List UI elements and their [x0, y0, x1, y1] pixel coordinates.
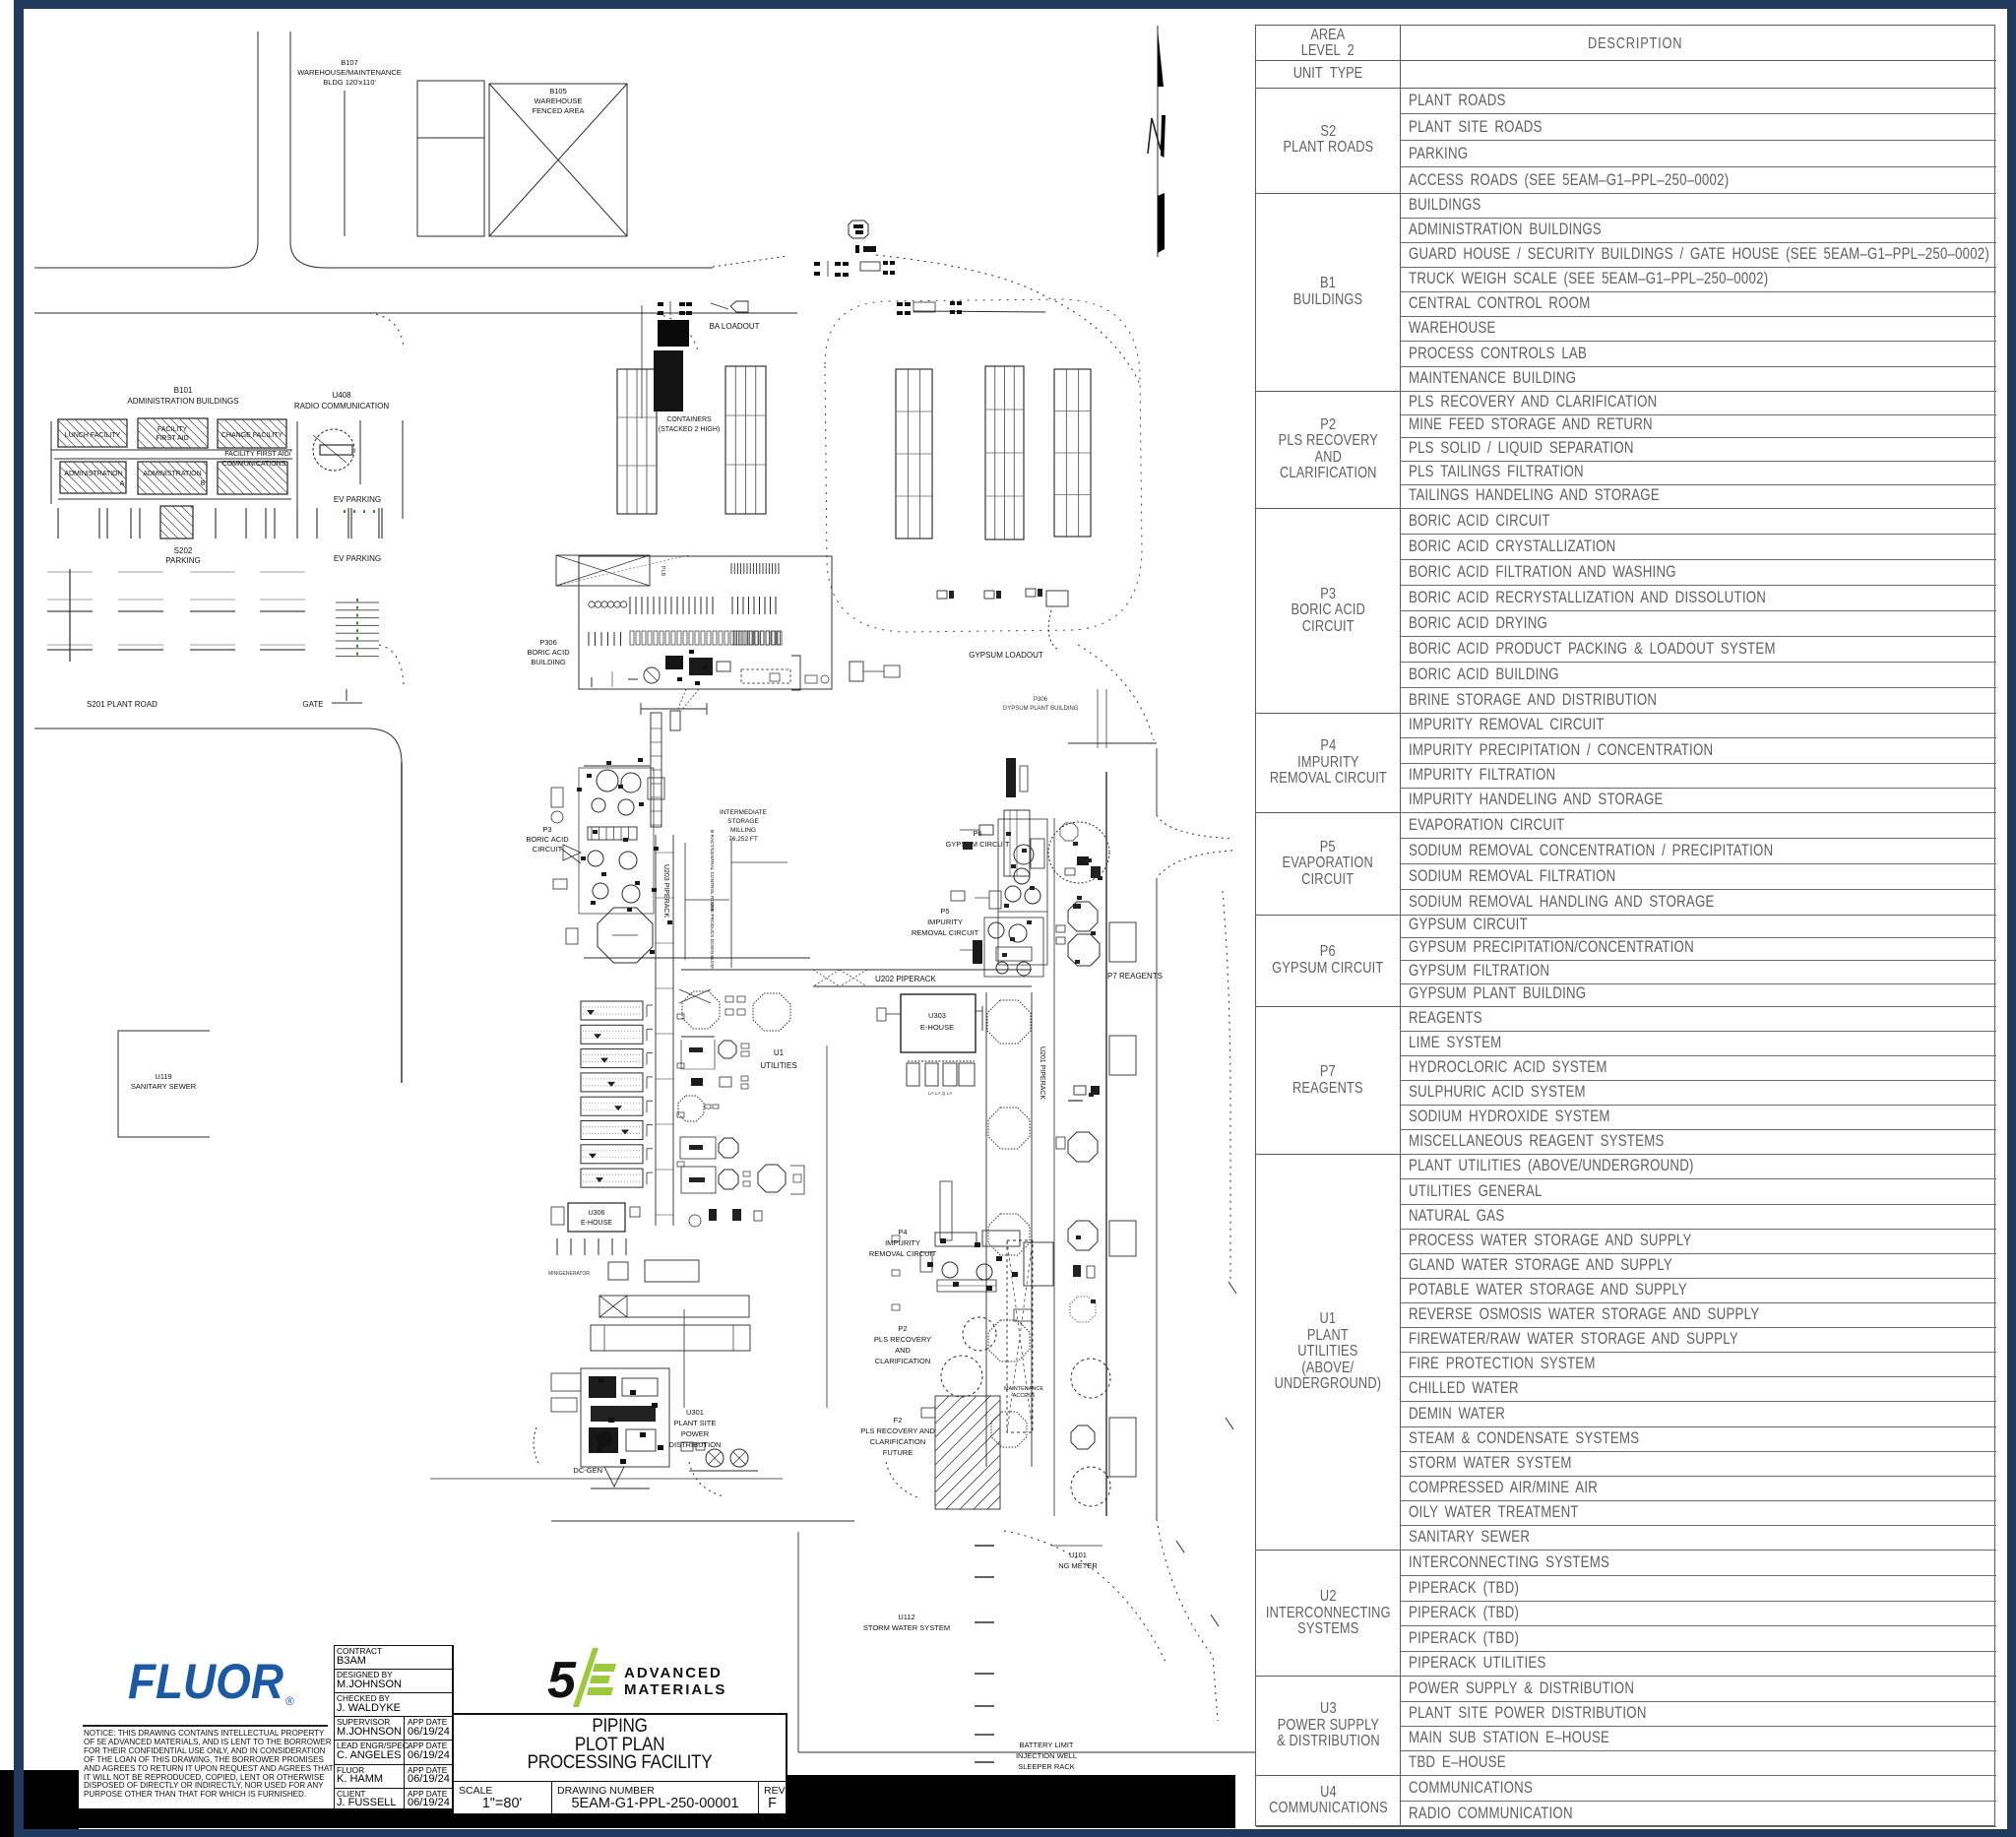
svg-text:U112: U112 — [898, 1613, 914, 1621]
svg-text:U408: U408 — [332, 391, 351, 400]
svg-text:CONTAINERS: CONTAINERS — [666, 416, 712, 423]
svg-text:WAREHOUSE/MAINTENANCE: WAREHOUSE/MAINTENANCE — [297, 68, 402, 77]
svg-text:DISTRIBUTION: DISTRIBUTION — [669, 1440, 722, 1449]
svg-text:E-HOUSE: E-HOUSE — [581, 1220, 612, 1227]
svg-text:U201 PIPERACK: U201 PIPERACK — [1039, 1046, 1045, 1100]
svg-text:A: A — [120, 480, 125, 487]
svg-text:P5: P5 — [940, 907, 949, 916]
svg-text:S202: S202 — [174, 546, 193, 555]
svg-text:MNE PRODUCS DOWN BLDM: MNE PRODUCS DOWN BLDM — [709, 902, 715, 968]
svg-text:76,252 FT: 76,252 FT — [728, 836, 758, 843]
svg-text:GYPSUM LOADOUT: GYPSUM LOADOUT — [969, 651, 1043, 660]
svg-text:U301: U301 — [686, 1408, 704, 1417]
svg-text:POWER: POWER — [681, 1429, 710, 1438]
svg-text:BATTERY LIMIT: BATTERY LIMIT — [1019, 1741, 1073, 1749]
svg-text:P7 REAGENTS: P7 REAGENTS — [1107, 972, 1163, 981]
svg-text:RADIO COMMUNICATION: RADIO COMMUNICATION — [294, 402, 390, 411]
svg-text:EV PARKING: EV PARKING — [334, 495, 381, 504]
svg-text:PLS RECOVERY AND: PLS RECOVERY AND — [860, 1426, 935, 1435]
svg-text:STORM WATER SYSTEM: STORM WATER SYSTEM — [863, 1623, 950, 1632]
svg-text:B101: B101 — [174, 386, 193, 395]
svg-text:U303: U303 — [928, 1011, 946, 1020]
svg-text:FACILITY: FACILITY — [157, 426, 188, 433]
svg-text:5: 5 — [547, 1652, 577, 1709]
svg-text:INJECTION WELL: INJECTION WELL — [1016, 1751, 1077, 1760]
svg-text:SLEEPER RACK: SLEEPER RACK — [1018, 1762, 1075, 1771]
svg-text:ADMINISTRATION: ADMINISTRATION — [64, 471, 122, 477]
svg-text:BORIC ACID: BORIC ACID — [527, 648, 570, 657]
svg-text:GYPSUM PLANT BUILDING: GYPSUM PLANT BUILDING — [1003, 706, 1079, 712]
svg-text:EV PARKING: EV PARKING — [334, 554, 381, 563]
svg-text:U119: U119 — [155, 1072, 171, 1081]
svg-text:U101: U101 — [1069, 1551, 1087, 1559]
svg-text:STORAGE: STORAGE — [727, 818, 759, 825]
svg-text:DC-GEN: DC-GEN — [573, 1466, 602, 1475]
svg-text:CLARIFICATION: CLARIFICATION — [875, 1357, 931, 1365]
svg-text:ADVANCED: ADVANCED — [624, 1665, 723, 1681]
svg-text:SANITARY SEWER: SANITARY SEWER — [131, 1082, 197, 1091]
svg-text:(STACKED 2 HIGH): (STACKED 2 HIGH) — [659, 426, 721, 433]
svg-text:IMPURITY: IMPURITY — [927, 918, 963, 926]
svg-text:F2: F2 — [894, 1416, 903, 1425]
svg-text:BA LOADOUT: BA LOADOUT — [709, 322, 759, 331]
svg-text:REMOVAL CIRCUIT: REMOVAL CIRCUIT — [912, 928, 979, 937]
svg-text:B RACT/CENTRAL CONTROL ROOM: B RACT/CENTRAL CONTROL ROOM — [709, 830, 715, 911]
svg-text:REMOVAL CIRCUIT: REMOVAL CIRCUIT — [869, 1249, 937, 1258]
svg-text:LA LA Q LA: LA LA Q LA — [928, 1091, 954, 1097]
svg-text:PLS RECOVERY: PLS RECOVERY — [874, 1335, 931, 1344]
svg-text:U203 PIPERACK: U203 PIPERACK — [662, 864, 669, 918]
svg-text:LUNCH FACILITY: LUNCH FACILITY — [65, 432, 121, 439]
svg-text:BORIC ACID: BORIC ACID — [526, 835, 569, 844]
svg-text:B: B — [201, 480, 206, 487]
svg-text:S201 PLANT ROAD: S201 PLANT ROAD — [87, 700, 157, 709]
svg-text:U1: U1 — [774, 1048, 785, 1057]
svg-text:B105: B105 — [549, 87, 567, 95]
svg-text:CIRCUIT: CIRCUIT — [533, 845, 563, 854]
svg-text:B107: B107 — [341, 58, 358, 67]
svg-text:GATE: GATE — [302, 700, 323, 709]
svg-text:MINIGENERATOR: MINIGENERATOR — [548, 1271, 590, 1277]
svg-text:U306: U306 — [589, 1210, 605, 1217]
svg-text:FUTURE: FUTURE — [883, 1448, 913, 1457]
svg-text:CLARIFICATION: CLARIFICATION — [870, 1437, 926, 1446]
svg-text:MAINTENANCE: MAINTENANCE — [1004, 1386, 1043, 1392]
svg-text:P306: P306 — [1034, 697, 1048, 703]
svg-text:GYPSUM CIRCUIT: GYPSUM CIRCUIT — [945, 840, 1009, 849]
svg-text:UTILITIES: UTILITIES — [760, 1061, 796, 1070]
svg-text:AND: AND — [895, 1346, 911, 1355]
svg-text:WAREHOUSE: WAREHOUSE — [535, 96, 583, 105]
svg-text:CHANGE FACILITY: CHANGE FACILITY — [221, 432, 283, 439]
svg-text:FENCED AREA: FENCED AREA — [533, 106, 585, 115]
svg-text:U202 PIPERACK: U202 PIPERACK — [875, 975, 936, 983]
svg-text:PARKING: PARKING — [165, 556, 200, 565]
svg-text:®: ® — [285, 1694, 294, 1708]
svg-text:P3: P3 — [542, 825, 551, 834]
svg-text:P306: P306 — [539, 638, 557, 647]
svg-text:COMMUNICATIONS: COMMUNICATIONS — [222, 461, 286, 468]
svg-text:E-HOUSE: E-HOUSE — [920, 1023, 954, 1032]
svg-text:PLB: PLB — [660, 566, 665, 577]
svg-text:FLUOR: FLUOR — [128, 1654, 283, 1709]
svg-text:BUILDING: BUILDING — [531, 658, 566, 666]
svg-text:ADMINISTRATION BUILDINGS: ADMINISTRATION BUILDINGS — [127, 397, 238, 406]
svg-text:P2: P2 — [898, 1324, 907, 1333]
svg-text:IMPURITY: IMPURITY — [885, 1238, 920, 1247]
svg-text:PLANT SITE: PLANT SITE — [674, 1419, 717, 1427]
svg-text:FACILITY FIRST AID/: FACILITY FIRST AID/ — [224, 451, 290, 458]
svg-text:INTERMEDIATE: INTERMEDIATE — [720, 809, 768, 816]
svg-text:MILLING: MILLING — [730, 827, 756, 834]
svg-text:ADMINISTRATION: ADMINISTRATION — [143, 471, 201, 477]
svg-text:BLDG 120'x110': BLDG 120'x110' — [323, 78, 376, 87]
svg-text:MATERIALS: MATERIALS — [624, 1681, 726, 1698]
svg-text:FIRST AID: FIRST AID — [156, 435, 188, 442]
